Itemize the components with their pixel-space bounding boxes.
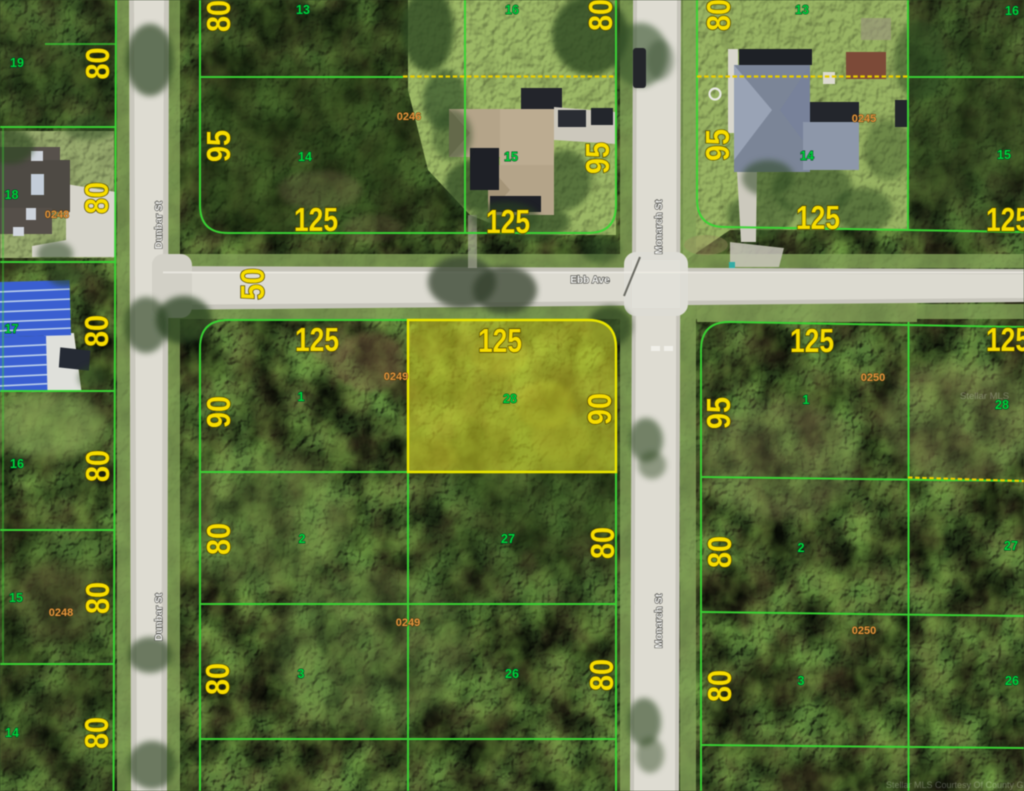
svg-text:0250: 0250 [852,625,876,637]
svg-text:95: 95 [200,130,237,162]
svg-text:125: 125 [294,201,338,238]
svg-text:80: 80 [79,582,116,614]
svg-text:27: 27 [1004,539,1018,553]
svg-text:80: 80 [582,0,619,31]
svg-text:0245: 0245 [852,113,876,125]
svg-text:0248: 0248 [49,607,73,619]
svg-text:80: 80 [79,48,116,80]
svg-text:80: 80 [701,670,738,702]
svg-text:1: 1 [298,390,305,404]
svg-text:14: 14 [298,150,312,164]
svg-text:0246: 0246 [397,111,421,123]
svg-text:95: 95 [579,142,616,174]
svg-text:Dunbar St: Dunbar St [154,592,165,640]
svg-text:Stellar MLS Courtesy Of County: Stellar MLS Courtesy Of County GIS [886,780,1024,790]
svg-text:50: 50 [234,268,271,300]
svg-text:0250: 0250 [861,372,885,384]
svg-text:27: 27 [501,532,515,546]
svg-text:0249: 0249 [384,371,408,383]
svg-text:95: 95 [700,397,737,429]
svg-text:80: 80 [199,663,236,695]
svg-text:80: 80 [701,536,738,568]
svg-text:14: 14 [5,726,19,740]
svg-text:125: 125 [790,322,834,359]
svg-text:15: 15 [9,591,23,605]
svg-text:90: 90 [581,393,618,425]
svg-text:26: 26 [1005,674,1019,688]
svg-text:80: 80 [78,315,115,347]
svg-text:80: 80 [78,182,115,214]
svg-text:3: 3 [298,667,305,681]
svg-text:80: 80 [200,0,237,32]
svg-text:80: 80 [200,523,237,555]
svg-text:0249: 0249 [396,617,420,629]
svg-text:Monarch St: Monarch St [654,593,665,648]
svg-text:26: 26 [505,667,519,681]
svg-text:Stellar MLS: Stellar MLS [960,391,1009,402]
svg-text:15: 15 [997,148,1011,162]
svg-text:Ebb Ave: Ebb Ave [570,275,610,286]
svg-text:0248: 0248 [45,209,69,221]
svg-text:Monarch St: Monarch St [654,199,665,254]
svg-text:90: 90 [200,396,237,428]
svg-text:17: 17 [5,322,19,336]
svg-text:16: 16 [505,3,519,17]
svg-text:28: 28 [503,392,517,406]
svg-text:1: 1 [803,393,810,407]
svg-text:125: 125 [295,321,339,358]
svg-text:125: 125 [478,322,522,359]
svg-text:13: 13 [296,3,310,17]
svg-text:95: 95 [699,129,736,161]
svg-text:125: 125 [796,199,840,236]
svg-text:80: 80 [584,527,621,559]
svg-text:80: 80 [583,659,620,691]
svg-text:2: 2 [299,532,306,546]
svg-text:Dunbar St: Dunbar St [154,200,165,248]
svg-text:14: 14 [800,149,814,163]
svg-text:80: 80 [79,450,116,482]
svg-text:19: 19 [10,56,24,70]
svg-text:18: 18 [5,188,19,202]
svg-text:13: 13 [795,3,809,17]
svg-text:3: 3 [798,674,805,688]
svg-text:80: 80 [700,0,737,31]
svg-text:125: 125 [986,201,1024,238]
svg-text:80: 80 [78,717,115,749]
svg-text:125: 125 [486,203,530,240]
svg-text:15: 15 [504,150,518,164]
svg-text:125: 125 [986,321,1024,358]
svg-text:16: 16 [1005,4,1019,18]
svg-text:16: 16 [10,457,24,471]
svg-text:2: 2 [798,541,805,555]
